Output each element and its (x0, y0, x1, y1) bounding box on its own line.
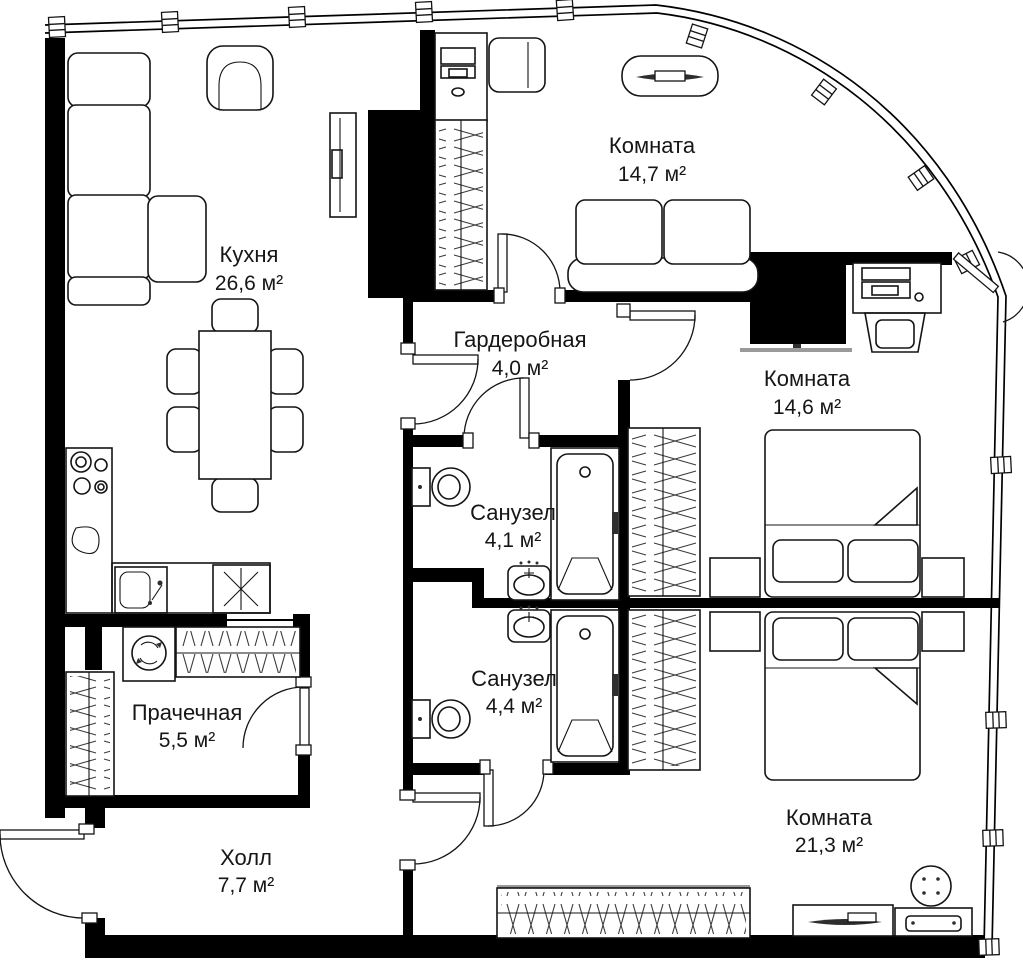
window-mullion-icon (979, 939, 1000, 956)
pillow (848, 618, 918, 660)
hanger-rack (628, 428, 700, 596)
dresser (895, 908, 972, 936)
door-leaf (413, 355, 478, 364)
room-label-kitchen: Кухня 26,6 м² (215, 242, 283, 295)
double-bed (765, 430, 920, 597)
room-label-room-14-7: Комната 14,7 м² (609, 133, 696, 186)
svg-text:Санузел: Санузел (470, 500, 556, 525)
svg-text:4,1 м²: 4,1 м² (485, 529, 541, 552)
svg-text:Комната: Комната (786, 805, 873, 830)
room-label-laundry: Прачечная 5,5 м² (132, 700, 243, 752)
tv-panel (740, 344, 852, 352)
window-mullion-icon (556, 0, 573, 21)
door-leaf (520, 378, 529, 438)
pillow (773, 540, 843, 582)
bathtub-icon (551, 448, 619, 600)
window-mullion-icon (415, 2, 432, 23)
window-mullion-icon (991, 456, 1012, 473)
door-leaf (498, 234, 507, 292)
washing-machine (123, 627, 175, 681)
svg-text:Прачечная: Прачечная (132, 700, 243, 725)
svg-text:7,7 м²: 7,7 м² (218, 874, 274, 897)
svg-text:14,6 м²: 14,6 м² (773, 396, 841, 419)
svg-text:Кухня: Кухня (220, 242, 279, 267)
bathroom-sink-icon (508, 561, 550, 601)
window-mullion-icon (288, 7, 305, 28)
round-table (911, 866, 951, 906)
room-label-bathroom-4-1: Санузел 4,1 м² (470, 500, 556, 552)
room-label-bathroom-4-4: Санузел 4,4 м² (471, 666, 557, 718)
svg-text:Комната: Комната (764, 366, 851, 391)
sofa (568, 200, 758, 292)
nightstand (922, 612, 964, 651)
toilet-icon (412, 468, 470, 506)
svg-text:4,4 м²: 4,4 м² (486, 695, 542, 718)
nightstand (710, 612, 760, 651)
svg-text:Холл: Холл (220, 845, 272, 870)
door-leaf (300, 688, 309, 746)
kitchen-furniture (66, 46, 356, 613)
svg-text:4,0 м²: 4,0 м² (492, 357, 548, 380)
bathroom-sink-icon (508, 606, 550, 643)
door-leaf (630, 311, 695, 320)
tv-cabinet (793, 905, 893, 936)
dishwasher-icon (224, 568, 258, 610)
wardrobe (497, 885, 750, 938)
desk (853, 263, 941, 313)
pillow (848, 540, 918, 582)
tv-unit (330, 113, 356, 217)
double-bed (765, 612, 920, 780)
room-14-7-furniture (435, 33, 758, 292)
svg-text:Санузел: Санузел (471, 666, 557, 691)
svg-text:5,5 м²: 5,5 м² (159, 729, 215, 752)
window-mullion-icon (161, 12, 178, 33)
hanger-rack (176, 627, 300, 677)
window-mullion-icon (983, 830, 1004, 847)
svg-text:Комната: Комната (609, 133, 696, 158)
bathtub-icon (551, 610, 619, 762)
floor-plan: Кухня 26,6 м² Комната 14,7 м² Гардеробна… (0, 0, 1023, 960)
nightstand (922, 558, 964, 597)
window-mullion-icon (48, 17, 65, 38)
svg-text:21,3 м²: 21,3 м² (795, 834, 863, 857)
floor-plan-drawing: Кухня 26,6 м² Комната 14,7 м² Гардеробна… (0, 0, 1023, 960)
window-mullion-icon (686, 24, 707, 48)
tv-bench (622, 56, 718, 96)
hanger-rack (435, 120, 487, 290)
room-label-room-14-6: Комната 14,6 м² (764, 366, 851, 419)
sink-icon (72, 527, 99, 554)
window-mullion-icon (812, 79, 837, 105)
corner-sofa (68, 53, 206, 305)
door-leaf (413, 793, 480, 802)
entrance-door-leaf (0, 830, 84, 839)
toilet-icon (412, 700, 470, 738)
room-label-wardrobe: Гардеробная 4,0 м² (453, 327, 586, 380)
armchair (207, 46, 273, 110)
window-mullion-icon (986, 712, 1007, 729)
svg-text:26,6 м²: 26,6 м² (215, 272, 283, 295)
svg-text:Гардеробная: Гардеробная (453, 327, 586, 352)
hanger-rack (628, 610, 700, 770)
desk-chair (865, 313, 925, 352)
room-label-room-21-3: Комната 21,3 м² (786, 805, 873, 857)
hanger-rack (66, 672, 114, 796)
dining-table-with-chairs (167, 299, 303, 512)
desk-chair (489, 38, 545, 92)
pillow (773, 618, 843, 660)
desk (435, 33, 487, 121)
room-label-hall: Холл 7,7 м² (218, 845, 274, 897)
nightstand (710, 558, 760, 597)
door-leaf (484, 770, 493, 826)
svg-text:14,7 м²: 14,7 м² (618, 163, 686, 186)
